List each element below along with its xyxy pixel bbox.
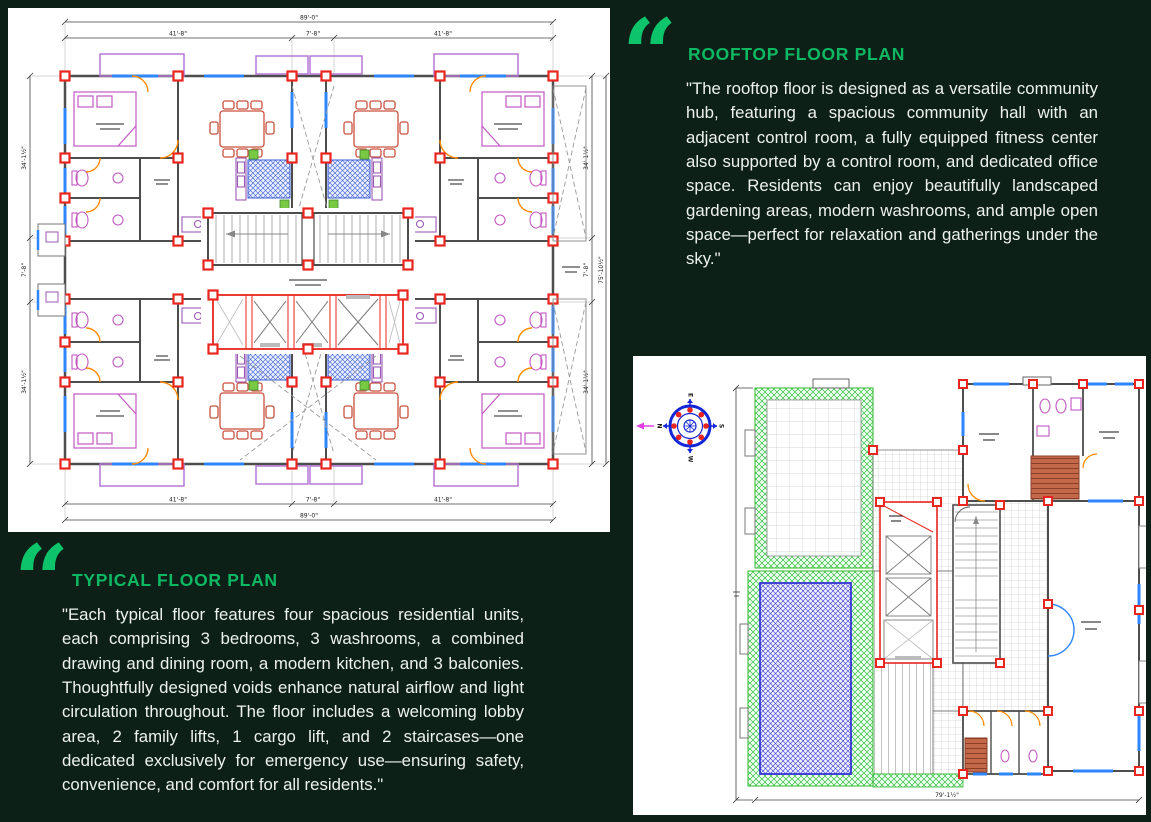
svg-text:41'-8": 41'-8" (169, 497, 187, 504)
quote-icon: “ (622, 20, 670, 89)
svg-text:34'-1½": 34'-1½" (21, 146, 28, 170)
compass-west-arrow (636, 423, 644, 430)
svg-text:7'-8": 7'-8" (306, 497, 320, 504)
svg-text:41'-8": 41'-8" (434, 497, 452, 504)
compass-icon: E N S W (636, 393, 725, 463)
rooftop-top-rooms (963, 377, 1139, 501)
rooftop-washrooms (963, 711, 1048, 774)
balcony (100, 54, 184, 76)
svg-text:7'-8": 7'-8" (21, 263, 28, 277)
typical-floor-plan-panel: 89'-0" 41'-8" 7'-8" 41'-8" 41'-8" 7'-8" … (8, 8, 610, 532)
svg-text:89'-0": 89'-0" (300, 513, 318, 520)
central-core (201, 208, 415, 354)
svg-text:7'-8": 7'-8" (583, 263, 590, 277)
rooftop-stair-shaft (953, 505, 1000, 663)
svg-text:34'-1½": 34'-1½" (583, 146, 590, 170)
rooftop-section-body: "The rooftop floor is designed as a vers… (686, 77, 1098, 272)
svg-text:41'-8": 41'-8" (434, 31, 452, 38)
svg-text:7'-8": 7'-8" (306, 31, 320, 38)
compass-north-label: N (656, 423, 663, 428)
svg-text:34'-1½": 34'-1½" (583, 370, 590, 394)
compass-south-label: S (718, 424, 725, 428)
rooftop-section-title: ROOFTOP FLOOR PLAN (688, 18, 1127, 65)
rooftop-lift-core (880, 502, 937, 663)
rooftop-hall (1048, 501, 1146, 771)
compass-west-label: W (687, 456, 694, 463)
rooftop-garden (745, 379, 873, 568)
rooftop-floor-plan-panel: E N S W 79'-1½" (633, 356, 1146, 815)
bed (74, 92, 136, 146)
balcony (256, 56, 308, 74)
quote-icon: “ (14, 546, 62, 615)
rooftop-floor-plan-drawing: E N S W 79'-1½" (633, 356, 1146, 815)
rooftop-pool (740, 571, 873, 786)
living-rug (248, 160, 290, 198)
plant (249, 150, 258, 159)
typical-section-title: TYPICAL FLOOR PLAN (72, 544, 534, 591)
svg-text:89'-0": 89'-0" (300, 15, 318, 22)
typical-section-body: "Each typical floor features four spacio… (62, 603, 524, 798)
svg-text:75'-10½": 75'-10½" (598, 256, 605, 284)
typical-floor-plan-drawing: 89'-0" 41'-8" 7'-8" 41'-8" 41'-8" 7'-8" … (8, 8, 610, 532)
svg-text:34'-1½": 34'-1½" (21, 370, 28, 394)
plant (280, 200, 289, 209)
sofa (236, 158, 246, 200)
svg-text:41'-8": 41'-8" (169, 31, 187, 38)
roof-stair (965, 738, 987, 772)
svg-text:79'-1½": 79'-1½" (935, 792, 959, 799)
typical-section: “ TYPICAL FLOOR PLAN "Each typical floor… (14, 544, 534, 798)
roof-stair (1031, 456, 1079, 499)
rooftop-section: “ ROOFTOP FLOOR PLAN "The rooftop floor … (622, 18, 1127, 272)
compass-east-label: E (687, 393, 694, 397)
